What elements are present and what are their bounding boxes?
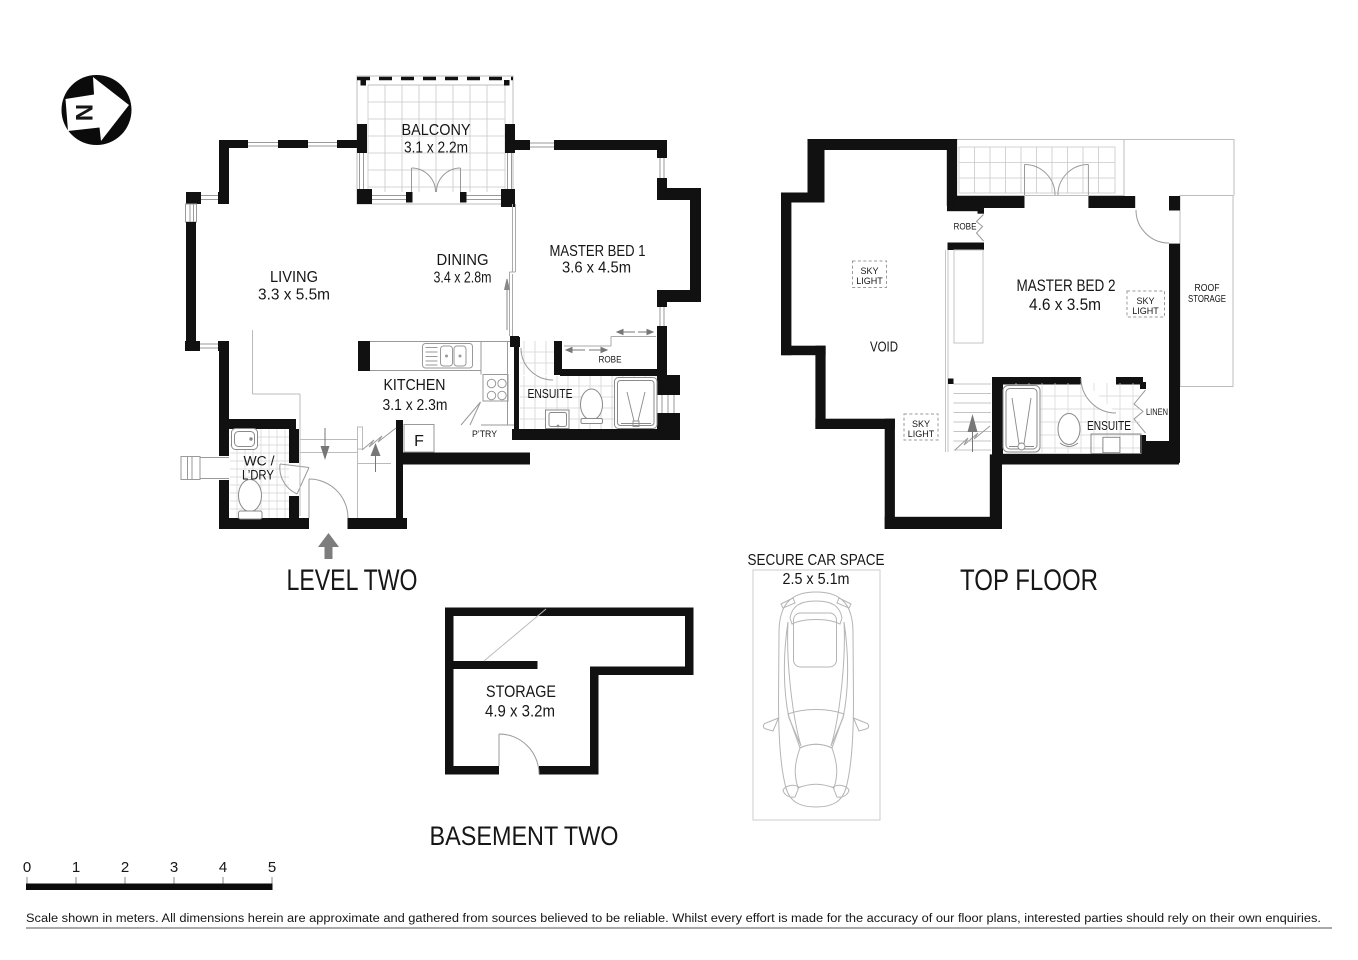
- svg-text:2.5 x 5.1m: 2.5 x 5.1m: [783, 571, 850, 588]
- svg-text:STORAGE: STORAGE: [486, 682, 556, 701]
- svg-text:LIGHT: LIGHT: [1132, 306, 1159, 316]
- svg-text:0: 0: [23, 859, 31, 876]
- svg-text:ROBE: ROBE: [954, 222, 977, 232]
- svg-text:3.1 x 2.2m: 3.1 x 2.2m: [404, 140, 468, 157]
- svg-text:4.9 x 3.2m: 4.9 x 3.2m: [485, 702, 555, 721]
- svg-text:3: 3: [170, 859, 178, 876]
- svg-text:3.1 x 2.3m: 3.1 x 2.3m: [383, 397, 448, 414]
- svg-text:N: N: [70, 104, 97, 121]
- svg-text:BASEMENT TWO: BASEMENT TWO: [430, 821, 619, 851]
- svg-text:3.3 x 5.5m: 3.3 x 5.5m: [258, 287, 330, 304]
- svg-text:LIGHT: LIGHT: [856, 276, 883, 286]
- svg-text:P’TRY: P’TRY: [472, 429, 497, 439]
- svg-text:1: 1: [72, 859, 80, 876]
- svg-text:MASTER BED 2: MASTER BED 2: [1017, 276, 1116, 295]
- svg-text:4: 4: [219, 859, 227, 876]
- svg-text:LEVEL TWO: LEVEL TWO: [287, 564, 418, 597]
- svg-text:2: 2: [121, 859, 129, 876]
- svg-text:BALCONY: BALCONY: [402, 122, 471, 139]
- svg-text:ROOF: ROOF: [1195, 283, 1220, 294]
- svg-text:4.6 x 3.5m: 4.6 x 3.5m: [1029, 295, 1101, 314]
- svg-text:DINING: DINING: [437, 252, 489, 269]
- svg-text:Scale shown in meters. All dim: Scale shown in meters. All dimensions he…: [26, 913, 1321, 925]
- svg-text:3.6 x 4.5m: 3.6 x 4.5m: [562, 260, 631, 277]
- svg-text:ROBE: ROBE: [599, 355, 622, 365]
- svg-text:LINEN: LINEN: [1146, 407, 1168, 418]
- svg-text:SKY: SKY: [912, 419, 930, 429]
- svg-text:SKY: SKY: [860, 266, 878, 276]
- svg-text:5: 5: [268, 859, 276, 876]
- svg-text:L’DRY: L’DRY: [242, 468, 274, 483]
- svg-text:KITCHEN: KITCHEN: [384, 377, 446, 394]
- svg-text:STORAGE: STORAGE: [1188, 294, 1226, 305]
- svg-text:VOID: VOID: [870, 339, 898, 356]
- svg-text:WC /: WC /: [244, 454, 275, 469]
- svg-text:LIVING: LIVING: [270, 269, 318, 286]
- svg-text:ENSUITE: ENSUITE: [528, 387, 573, 401]
- svg-text:ENSUITE: ENSUITE: [1087, 419, 1131, 433]
- svg-text:F: F: [414, 433, 424, 450]
- svg-text:SKY: SKY: [1136, 296, 1154, 306]
- svg-text:TOP FLOOR: TOP FLOOR: [960, 564, 1098, 597]
- svg-text:3.4 x 2.8m: 3.4 x 2.8m: [434, 270, 492, 287]
- svg-text:LIGHT: LIGHT: [908, 429, 935, 439]
- svg-text:SECURE CAR SPACE: SECURE CAR SPACE: [748, 552, 885, 569]
- svg-text:MASTER BED 1: MASTER BED 1: [550, 243, 646, 260]
